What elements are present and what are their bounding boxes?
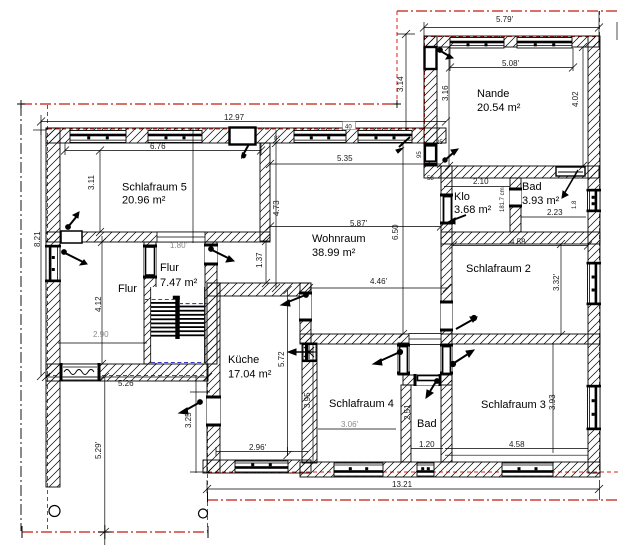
svg-text:3.11: 3.11 [87, 174, 96, 190]
svg-text:Schlafraum 4: Schlafraum 4 [329, 398, 394, 410]
svg-text:8.21: 8.21 [33, 231, 42, 247]
svg-text:5.29': 5.29' [94, 441, 103, 459]
svg-text:Schlafraum 5: Schlafraum 5 [122, 182, 187, 194]
svg-text:58: 58 [427, 176, 434, 182]
svg-text:7.47 m²: 7.47 m² [160, 277, 198, 289]
svg-text:12.97: 12.97 [224, 113, 245, 122]
svg-text:3.32': 3.32' [552, 273, 561, 291]
svg-text:20.54 m²: 20.54 m² [477, 102, 521, 114]
svg-text:25: 25 [436, 140, 443, 146]
svg-text:Küche: Küche [228, 354, 259, 366]
svg-text:5.72: 5.72 [277, 351, 286, 367]
svg-text:2.51: 2.51 [403, 404, 412, 420]
svg-text:6.76: 6.76 [150, 142, 166, 151]
svg-text:2.23: 2.23 [547, 208, 563, 217]
svg-text:3.93: 3.93 [548, 394, 557, 410]
svg-text:13.21: 13.21 [392, 480, 413, 489]
svg-text:2.90: 2.90 [93, 330, 109, 339]
svg-text:5.26: 5.26 [118, 379, 134, 388]
svg-text:1.8: 1.8 [572, 200, 578, 209]
svg-text:181.7 cm: 181.7 cm [500, 187, 506, 212]
svg-text:3.16: 3.16 [441, 85, 450, 101]
svg-text:38.99 m²: 38.99 m² [312, 247, 356, 259]
svg-text:20.96 m²: 20.96 m² [122, 195, 166, 207]
svg-text:1.80': 1.80' [170, 241, 188, 250]
svg-text:Bad: Bad [417, 418, 437, 430]
svg-text:1.20: 1.20 [419, 440, 435, 449]
svg-text:2.96': 2.96' [249, 443, 267, 452]
svg-text:Nande: Nande [477, 88, 509, 100]
svg-text:1.37: 1.37 [255, 252, 264, 268]
svg-text:8°: 8° [274, 136, 280, 142]
svg-text:5.87': 5.87' [350, 219, 368, 228]
svg-text:4.46': 4.46' [370, 277, 388, 286]
svg-text:40: 40 [345, 124, 352, 130]
svg-text:4.73: 4.73 [272, 200, 281, 216]
svg-text:3.14: 3.14 [396, 76, 405, 92]
svg-text:3.06': 3.06' [341, 420, 359, 429]
svg-text:5.08': 5.08' [502, 59, 520, 68]
svg-text:2.10: 2.10 [473, 177, 489, 186]
svg-text:3.68 m²: 3.68 m² [454, 204, 492, 216]
svg-text:4.12: 4.12 [94, 296, 103, 312]
svg-text:4.58: 4.58 [509, 440, 525, 449]
svg-text:5.35: 5.35 [337, 154, 353, 163]
svg-text:Bad: Bad [522, 181, 542, 193]
svg-text:Flur: Flur [160, 262, 179, 274]
svg-text:Wohnraum: Wohnraum [312, 233, 366, 245]
svg-text:Flur: Flur [118, 283, 137, 295]
svg-text:6.50: 6.50 [391, 224, 400, 240]
svg-text:5.79': 5.79' [496, 15, 514, 24]
svg-text:17.04 m²: 17.04 m² [228, 369, 272, 381]
svg-text:3.25: 3.25 [184, 412, 193, 428]
svg-text:4.02: 4.02 [571, 91, 580, 107]
svg-text:95: 95 [417, 151, 423, 158]
svg-text:3.93 m²: 3.93 m² [522, 195, 560, 207]
svg-text:Klo: Klo [454, 191, 470, 203]
svg-text:Schlafraum 3: Schlafraum 3 [481, 399, 546, 411]
svg-text:Schlafraum 2: Schlafraum 2 [466, 263, 531, 275]
svg-text:4.58: 4.58 [510, 238, 526, 247]
svg-text:3.95: 3.95 [303, 392, 312, 408]
